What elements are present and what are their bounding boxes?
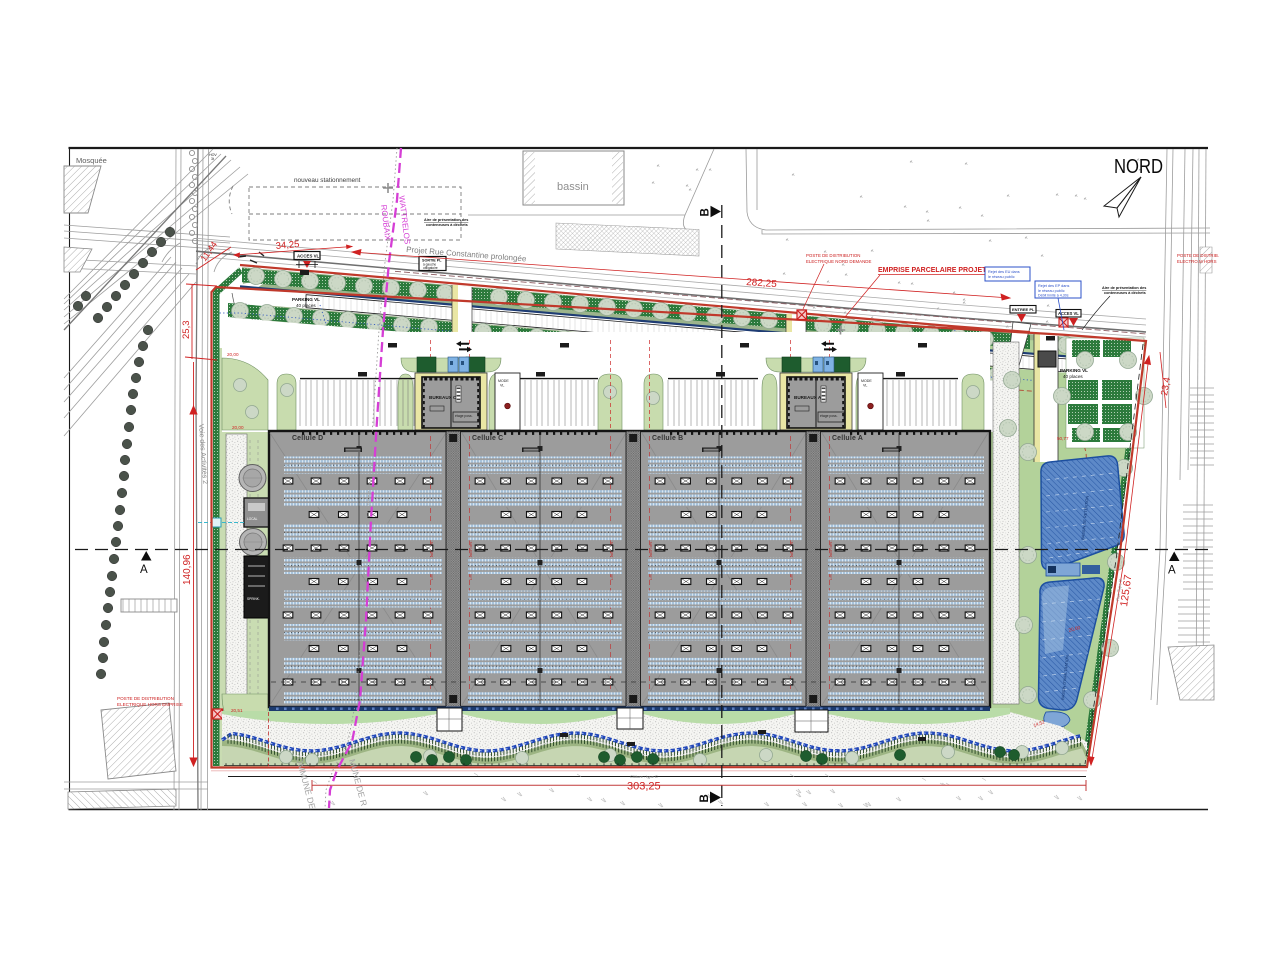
svg-text:Clôture : type C: Clôture : type C [630,774,658,779]
svg-text:25,3: 25,3 [181,321,192,340]
svg-text:Cellule C: Cellule C [472,435,503,442]
svg-text:étage poss.: étage poss. [820,414,838,418]
svg-text:VL: VL [500,384,504,388]
svg-text:Aire de présentation des: Aire de présentation des [1102,286,1146,290]
svg-text:MODE: MODE [861,379,872,383]
svg-text:ACCES VL: ACCES VL [297,254,320,259]
svg-text:Rejet des EP dans: Rejet des EP dans [1038,284,1069,288]
svg-text:50,77: 50,77 [1057,436,1069,441]
svg-text:Cellule A: Cellule A [832,435,863,442]
svg-text:MODE: MODE [498,379,509,383]
svg-text:ELECTRO.M HORS: ELECTRO.M HORS [1177,259,1217,264]
svg-text:SPRINK.: SPRINK. [247,597,260,601]
svg-text:Cellule D: Cellule D [292,435,323,442]
svg-text:ENTREE PL: ENTREE PL [1012,307,1035,312]
svg-text:20,00: 20,00 [232,425,244,430]
svg-text:POSTE DE DISTRIBUTION: POSTE DE DISTRIBUTION [806,253,860,258]
svg-text:B: B [700,208,712,216]
svg-text:282,25: 282,25 [746,277,778,290]
svg-text:40 places: 40 places [1063,374,1083,379]
svg-text:POSTE DE DISTRIBUTION: POSTE DE DISTRIBUTION [117,696,174,701]
svg-text:POSTE DE DISTRIB.: POSTE DE DISTRIB. [1177,253,1219,258]
svg-text:obligatoire: obligatoire [423,266,438,270]
svg-text:bassin: bassin [557,181,589,193]
svg-text:B: B [699,794,711,802]
svg-text:20,00: 20,00 [227,352,239,357]
svg-text:140,96: 140,96 [182,554,193,585]
svg-text:ELECTRIQUE NORD DEMANDE: ELECTRIQUE NORD DEMANDE [806,259,871,264]
svg-text:Rejet des EU dans: Rejet des EU dans [988,270,1020,274]
svg-text:Mosquée: Mosquée [76,156,107,165]
svg-text:nouveau stationnement: nouveau stationnement [294,177,361,184]
svg-text:conteneuses à déchets: conteneuses à déchets [1104,291,1146,295]
svg-text:ELECTRIQUE HORS EMPRISE: ELECTRIQUE HORS EMPRISE [117,702,183,707]
svg-text:Aire de présentation des: Aire de présentation des [424,218,468,222]
svg-text:Cellule B: Cellule B [652,435,683,442]
svg-text:303,25: 303,25 [627,781,661,793]
svg-text:3t: 3t [211,157,214,161]
svg-text:étage poss.: étage poss. [455,414,473,418]
svg-text:le réseau public: le réseau public [1038,289,1065,293]
svg-text:PARKING VL: PARKING VL [292,297,320,302]
svg-text:A: A [140,564,148,576]
svg-text:LOCAL: LOCAL [247,517,258,521]
svg-text:A: A [1168,565,1176,577]
svg-text:VL: VL [863,384,867,388]
svg-text:le réseau public: le réseau public [988,275,1015,279]
svg-text:NORD: NORD [1114,156,1163,178]
svg-text:40 places: 40 places [296,303,316,308]
svg-text:34,25: 34,25 [275,239,300,252]
svg-text:conteneuses à déchets: conteneuses à déchets [426,223,468,227]
svg-text:20,51: 20,51 [231,708,243,713]
svg-text:Débit limité à 4,30s: Débit limité à 4,30s [1038,294,1069,298]
